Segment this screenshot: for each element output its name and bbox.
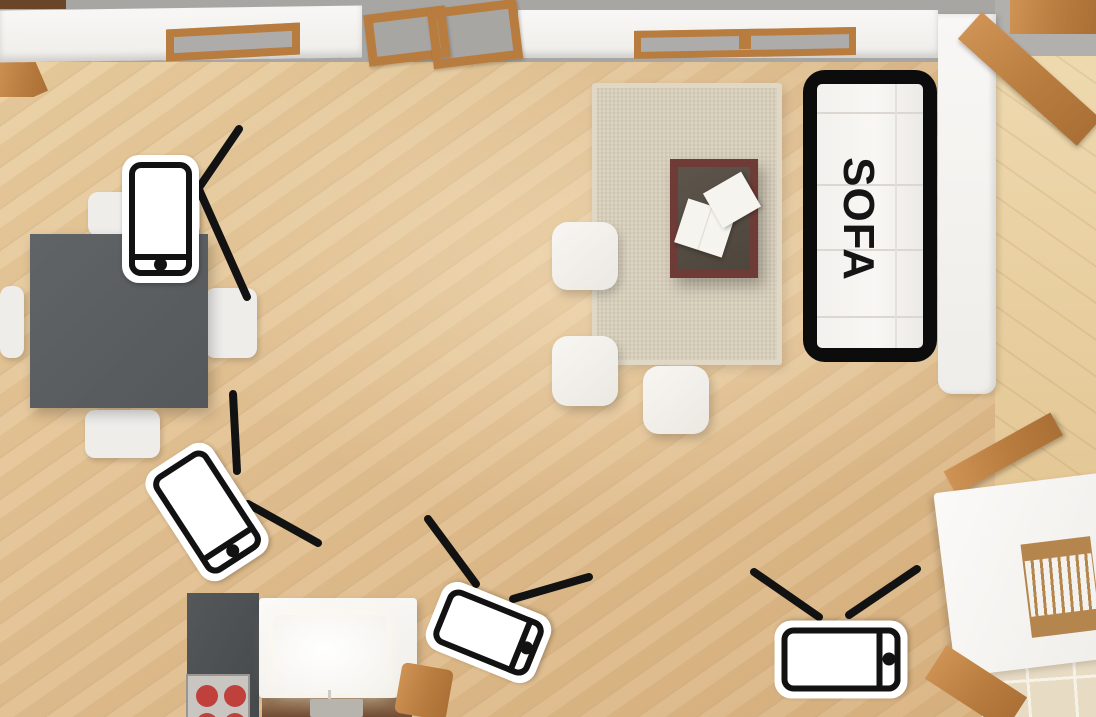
device-home-band: [129, 254, 192, 276]
device-home-band: [877, 627, 901, 691]
window-double: [634, 27, 856, 59]
dining-chair: [85, 410, 160, 458]
lamp-base: [310, 699, 363, 717]
dining-chair: [0, 286, 24, 358]
stove-burner: [196, 713, 218, 717]
device-frame: [782, 627, 901, 691]
white-stool: [552, 222, 618, 290]
doorway-wood-chair: [427, 0, 524, 69]
tv-living-room-icon: [775, 620, 908, 698]
sofa-seam: [817, 316, 923, 318]
device-home-button: [223, 542, 241, 560]
top-right-wood-cabinet: [1010, 0, 1096, 34]
sofa-seam: [817, 112, 923, 114]
dish-rack: [1021, 536, 1096, 638]
device-home-button: [154, 258, 167, 271]
sofa-seam: [895, 84, 897, 348]
dining-chair: [205, 288, 257, 358]
smartphone-dining-table-icon: [122, 155, 199, 283]
stove-burner: [196, 685, 218, 707]
kitchen-wood-stool: [394, 662, 454, 717]
table-lamp: [273, 615, 387, 693]
top-left-furniture-edge: [0, 0, 66, 9]
device-frame: [129, 162, 192, 276]
device-home-button: [518, 639, 535, 656]
stove-burner: [224, 685, 246, 707]
apartment-floorplan-scene: SOFA: [0, 0, 1096, 717]
white-stool: [552, 336, 618, 406]
sofa-label: SOFA: [833, 149, 883, 289]
stove-cooktop: [186, 674, 250, 717]
window-mullion: [739, 34, 751, 50]
right-wall: [938, 14, 996, 394]
white-stool: [643, 366, 709, 434]
plates: [1025, 553, 1096, 617]
stove-burner: [224, 713, 246, 717]
device-home-button: [882, 653, 895, 666]
